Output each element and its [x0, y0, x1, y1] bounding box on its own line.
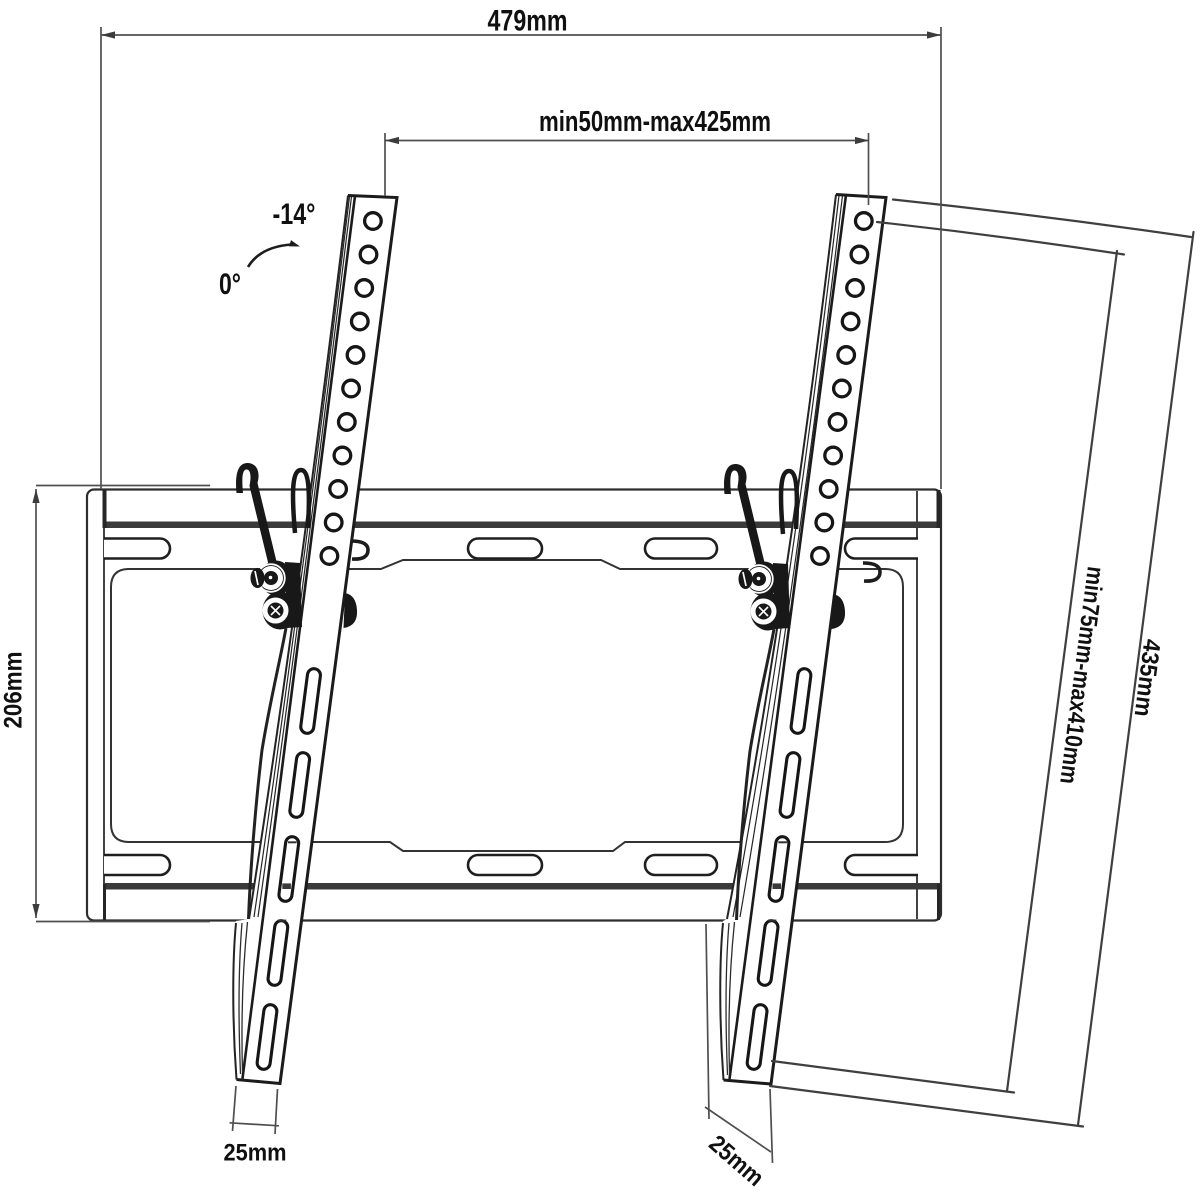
svg-text:0°: 0° — [219, 268, 241, 301]
svg-text:25mm: 25mm — [224, 1140, 287, 1167]
svg-text:206mm: 206mm — [0, 652, 28, 729]
svg-text:-14°: -14° — [273, 198, 316, 231]
svg-text:min50mm-max425mm: min50mm-max425mm — [539, 106, 771, 138]
svg-text:479mm: 479mm — [488, 5, 568, 38]
